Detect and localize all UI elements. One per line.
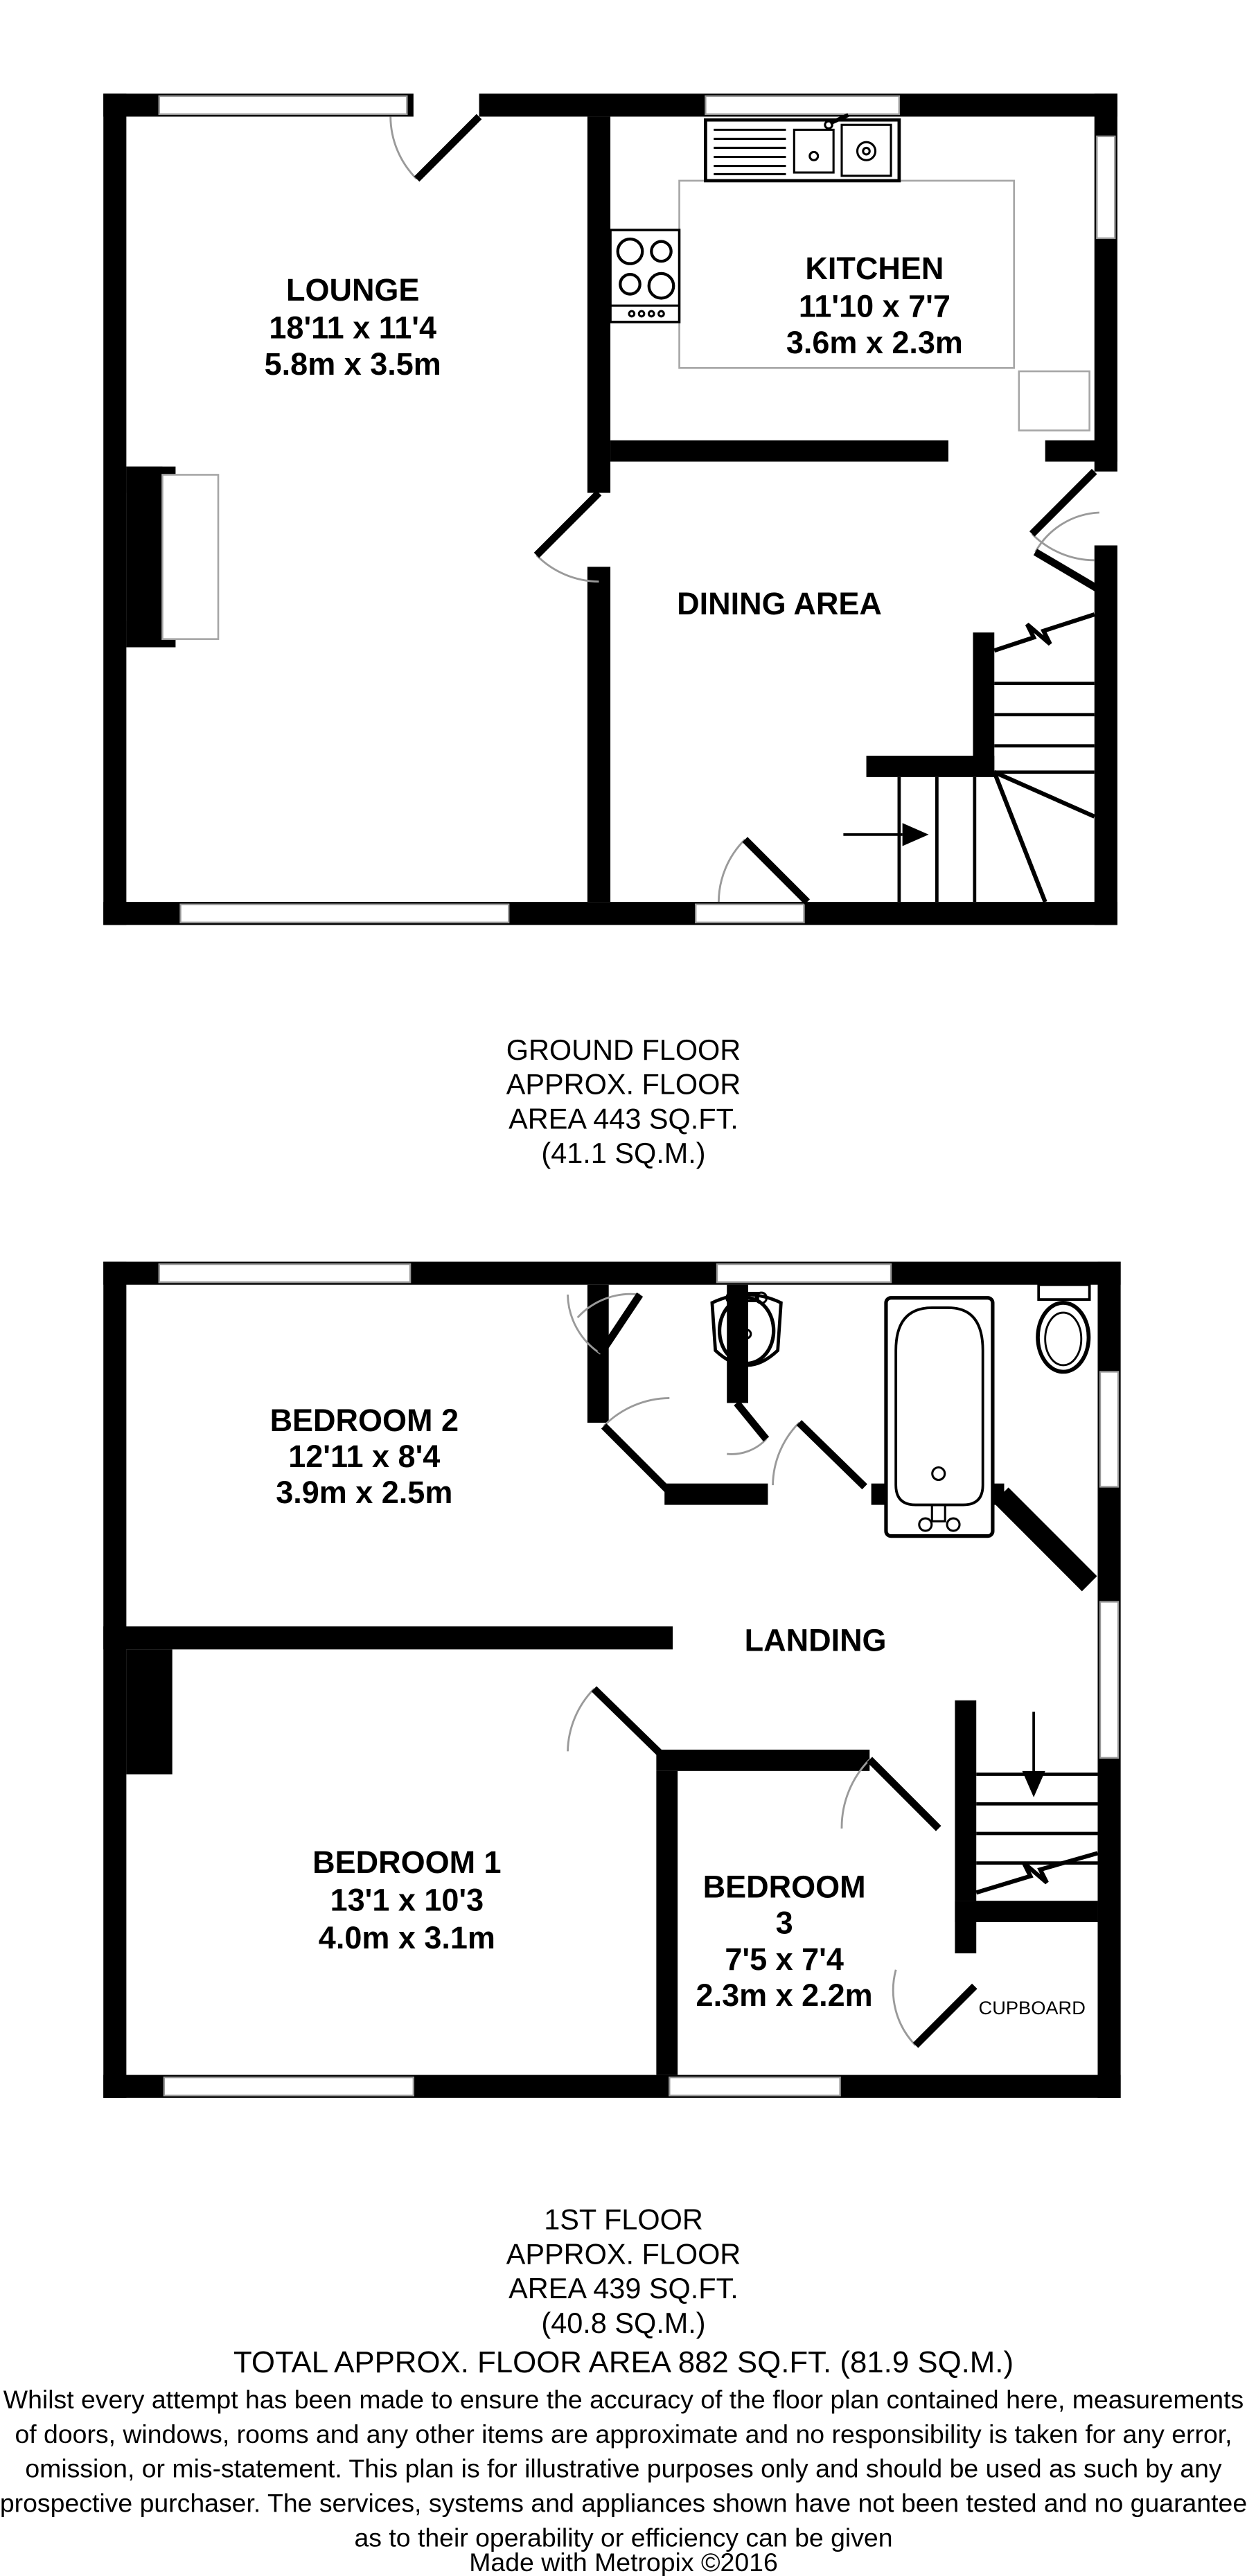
ff-wall-cupboard-stub xyxy=(955,1901,976,1953)
porch-door-leaf xyxy=(1035,552,1099,590)
bathroom-door-leaf xyxy=(799,1423,865,1487)
fireplace-icon xyxy=(126,467,218,648)
disclaimer-line3: omission, or mis-statement. This plan is… xyxy=(25,2454,1222,2483)
bathroom-window xyxy=(717,1264,891,1282)
gf-caption-line1: GROUND FLOOR xyxy=(506,1033,741,1066)
kitchen-appliance xyxy=(1019,371,1090,430)
ff-wall-left xyxy=(103,1262,126,2098)
total-area-text: TOTAL APPROX. FLOOR AREA 882 SQ.FT. (81.… xyxy=(233,2345,1014,2379)
landing-label: LANDING xyxy=(745,1623,887,1658)
ff-wall-bed3-left xyxy=(656,1771,678,2075)
bedroom3-label-line2: 3 xyxy=(776,1906,793,1941)
lounge-door-arc xyxy=(391,116,417,179)
airing-cupboard-door-arc xyxy=(727,1439,766,1455)
ff-wall-stairs-bottom xyxy=(955,1901,1097,1922)
front-door-leaf xyxy=(1032,472,1095,534)
bathroom-door-arc xyxy=(773,1423,799,1485)
lounge-label: LOUNGE xyxy=(286,272,419,308)
disclaimer-line1: Whilst every attempt has been made to en… xyxy=(3,2385,1244,2414)
bedroom1-label: BEDROOM 1 xyxy=(312,1845,501,1880)
bedroom1-dims-imperial: 13'1 x 10'3 xyxy=(330,1882,484,1917)
bedroom2-landing-door-arc xyxy=(604,1398,670,1425)
bedroom2-landing-door-leaf xyxy=(604,1426,670,1492)
lounge-dims-imperial: 18'11 x 11'4 xyxy=(269,310,436,346)
bedroom2-dims-imperial: 12'11 x 8'4 xyxy=(288,1439,440,1474)
ff-caption-line2: APPROX. FLOOR xyxy=(506,2237,741,2270)
cupboard-label: CUPBOARD xyxy=(979,1997,1086,2018)
bedroom3-dims-imperial: 7'5 x 7'4 xyxy=(725,1942,843,1977)
gf-caption-line3: AREA 443 SQ.FT. xyxy=(508,1102,739,1135)
bath-icon xyxy=(886,1298,993,1536)
ff-wall-bed3-top xyxy=(656,1750,869,1771)
bedroom3-window xyxy=(669,2077,840,2095)
stairs-down-arrow xyxy=(1023,1712,1045,1797)
floorplan-page: LOUNGE 18'11 x 11'4 5.8m x 3.5m KITCHEN … xyxy=(0,0,1247,2576)
ff-wall-bed2-bed1 xyxy=(103,1626,673,1649)
kitchen-dims-metric: 3.6m x 2.3m xyxy=(786,325,963,360)
ff-wall-diagonal xyxy=(1001,1495,1090,1583)
bed1-chimney-breast xyxy=(126,1649,172,1774)
stairs-down-icon xyxy=(976,1712,1097,1892)
disclaimer-line2: of doors, windows, rooms and any other i… xyxy=(15,2419,1232,2449)
bedroom1-window xyxy=(164,2077,414,2095)
metropix-credit: Made with Metropix ©2016 xyxy=(469,2548,778,2576)
hob-icon xyxy=(610,230,679,322)
landing-side-window xyxy=(1100,1602,1118,1758)
toilet-side-window xyxy=(1100,1371,1118,1486)
gf-wall-left xyxy=(103,94,126,925)
bedroom2-window xyxy=(159,1264,410,1282)
gf-wall-kitchen-dining-left xyxy=(610,441,948,462)
cupboard-door-leaf xyxy=(916,1987,975,2045)
first-floor-plan: BEDROOM 2 12'11 x 8'4 3.9m x 2.5m LANDIN… xyxy=(103,1262,1120,2098)
disclaimer: Whilst every attempt has been made to en… xyxy=(0,2385,1247,2552)
stairs-up-arrow xyxy=(843,823,928,846)
lounge-dining-door-leaf xyxy=(536,493,599,556)
ff-caption-line4: (40.8 SQ.M.) xyxy=(541,2307,705,2339)
gf-caption-line2: APPROX. FLOOR xyxy=(506,1068,741,1101)
kitchen-label: KITCHEN xyxy=(805,251,944,286)
airing-cupboard-door-leaf xyxy=(736,1403,766,1439)
kitchen-sink-icon xyxy=(705,115,899,181)
bedroom3-door-leaf xyxy=(869,1759,938,1829)
ff-caption-line3: AREA 439 SQ.FT. xyxy=(508,2272,739,2304)
kitchen-top-window xyxy=(705,96,899,114)
bedroom1-dims-metric: 4.0m x 3.1m xyxy=(319,1920,495,1955)
lounge-dims-metric: 5.8m x 3.5m xyxy=(265,346,441,382)
ground-floor-plan: LOUNGE 18'11 x 11'4 5.8m x 3.5m KITCHEN … xyxy=(103,92,1119,925)
dining-hall-door-arc xyxy=(718,840,745,902)
front-door-opening xyxy=(1093,472,1119,546)
gf-wall-lounge-kitchen xyxy=(587,116,610,492)
lounge-rear-window xyxy=(181,905,509,923)
gf-top-door-opening xyxy=(414,92,479,118)
toilet-icon xyxy=(1038,1285,1090,1372)
floorplan-drawing: LOUNGE 18'11 x 11'4 5.8m x 3.5m KITCHEN … xyxy=(0,0,1247,2576)
cupboard-door-arc xyxy=(893,1970,915,2045)
disclaimer-line4: prospective purchaser. The services, sys… xyxy=(0,2488,1247,2517)
dining-area-label: DINING AREA xyxy=(677,586,882,621)
gf-wall-kitchen-dining-right xyxy=(1045,441,1117,462)
lounge-front-window xyxy=(159,96,407,114)
ff-wall-stairwell xyxy=(955,1700,976,1901)
bedroom3-label-line1: BEDROOM xyxy=(703,1869,866,1904)
ground-floor-caption: GROUND FLOOR APPROX. FLOOR AREA 443 SQ.F… xyxy=(506,1033,741,1169)
ff-caption-line1: 1ST FLOOR xyxy=(544,2203,703,2236)
first-floor-caption: 1ST FLOOR APPROX. FLOOR AREA 439 SQ.FT. … xyxy=(506,2203,741,2339)
bedroom2-dims-metric: 3.9m x 2.5m xyxy=(276,1475,452,1510)
bedroom1-door-arc xyxy=(567,1689,594,1751)
gf-caption-line4: (41.1 SQ.M.) xyxy=(541,1137,705,1169)
gf-wall-stair-stub xyxy=(867,756,995,777)
lounge-door-leaf xyxy=(417,116,479,179)
dining-rear-window xyxy=(696,905,804,923)
bedroom2-label: BEDROOM 2 xyxy=(270,1403,459,1438)
kitchen-dims-imperial: 11'10 x 7'7 xyxy=(799,289,950,324)
ff-wall-landing-top-left xyxy=(664,1484,768,1505)
gf-wall-stairwell xyxy=(973,632,994,772)
gf-wall-lounge-dining xyxy=(587,567,610,902)
bedroom1-door-leaf xyxy=(594,1689,660,1753)
dining-hall-door-leaf xyxy=(745,840,807,902)
bedroom3-dims-metric: 2.3m x 2.2m xyxy=(696,1978,873,2013)
kitchen-side-window xyxy=(1097,136,1115,238)
